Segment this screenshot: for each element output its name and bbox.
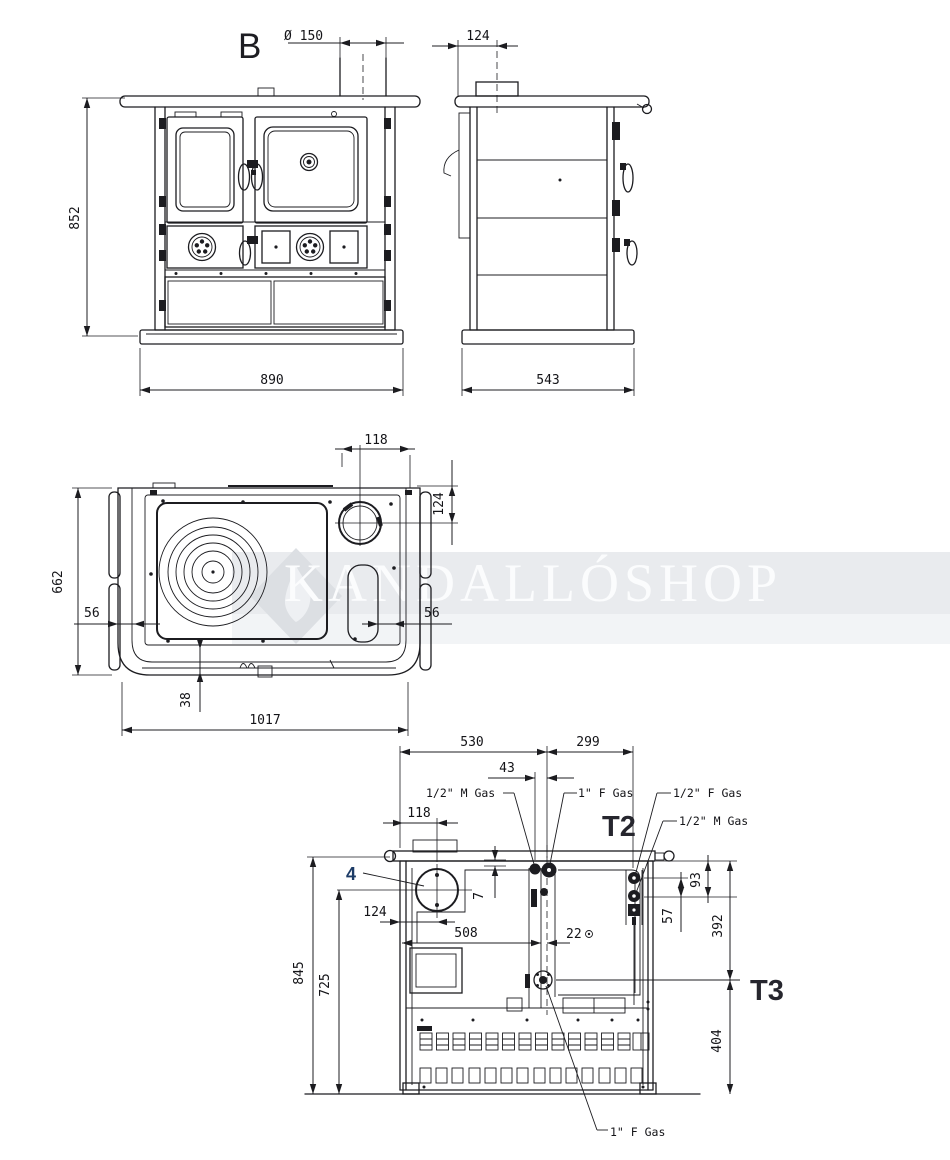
gas-m-right-label: 1/2" M Gas <box>679 814 748 828</box>
svg-text:845: 845 <box>292 961 307 984</box>
gas-m-top-label: 1/2" M Gas <box>426 786 495 800</box>
wood-drawer <box>165 277 385 327</box>
svg-text:392: 392 <box>711 914 726 937</box>
svg-text:725: 725 <box>318 973 333 996</box>
svg-text:56: 56 <box>84 606 100 621</box>
watermark: KANDALLÓSHOP <box>232 548 950 644</box>
dim-flue-diameter: Ø 150 <box>284 29 323 44</box>
flue-callout-4: 4 <box>346 864 356 884</box>
dim-height-852: 852 <box>68 98 138 336</box>
dim-725: 725 <box>318 890 342 1094</box>
air-rosette-left <box>189 234 216 261</box>
svg-text:543: 543 <box>536 373 559 388</box>
svg-text:852: 852 <box>68 206 83 229</box>
rear-view: 530 299 43 1/2" M Gas 1" F Gas T2 1/2" F… <box>292 735 784 1139</box>
dim-width-1017: 1017 <box>122 682 408 736</box>
svg-text:56: 56 <box>424 606 440 621</box>
drawing-page: KANDALLÓSHOP B Ø 150 <box>0 0 950 1160</box>
svg-text:124: 124 <box>363 905 387 920</box>
dim-left-56: 56 <box>74 606 160 627</box>
technical-drawing: KANDALLÓSHOP B Ø 150 <box>0 0 950 1160</box>
dim-57: 57 <box>644 872 688 932</box>
lower-panels <box>165 222 385 277</box>
fitting-bolt <box>540 888 548 896</box>
dim-depth-662: 662 <box>51 488 112 675</box>
svg-text:93: 93 <box>689 872 704 888</box>
side-view: 124 <box>432 29 652 396</box>
dim-top-124: 124 <box>417 460 458 545</box>
dim-404: 404 <box>710 980 733 1094</box>
air-rosette-right <box>297 234 324 261</box>
side-top-plate <box>455 96 652 114</box>
side-body <box>444 107 637 330</box>
svg-text:57: 57 <box>661 908 676 924</box>
svg-text:124: 124 <box>432 492 447 516</box>
dim-392: 392 <box>711 861 733 980</box>
svg-text:299: 299 <box>576 735 599 750</box>
svg-text:890: 890 <box>260 373 283 388</box>
gas-f-top-label: 1" F Gas <box>578 786 633 800</box>
thermometer <box>301 154 318 171</box>
svg-text:530: 530 <box>460 735 483 750</box>
base-plinth <box>140 330 403 344</box>
flue-callout-leader <box>363 873 424 886</box>
firebox-door <box>167 117 243 223</box>
dim-845: 845 <box>292 857 390 1094</box>
door-handles <box>239 160 263 265</box>
svg-text:662: 662 <box>51 570 66 593</box>
t2-label: T2 <box>602 811 636 843</box>
side-base <box>462 330 634 344</box>
dim-width-890: 890 <box>140 348 403 396</box>
front-view: B Ø 150 <box>68 27 420 396</box>
svg-text:22: 22 <box>566 927 582 942</box>
svg-text:118: 118 <box>364 433 387 448</box>
watermark-text: KANDALLÓSHOP <box>284 553 782 613</box>
svg-text:118: 118 <box>407 806 430 821</box>
dim-rear-124: 124 <box>363 905 455 925</box>
dim-508-22: 508 22 <box>402 926 593 946</box>
stove-body <box>155 107 395 330</box>
gas-fitting-f-top <box>542 863 557 878</box>
gas-fitting-m-top <box>530 864 541 875</box>
back-rail <box>153 483 333 488</box>
dim-flue-offset-124: 124 <box>432 29 518 113</box>
dim-depth-543: 543 <box>462 348 634 396</box>
flue-pipe <box>340 54 386 100</box>
t3-label: T3 <box>750 975 784 1007</box>
vent-grille-row2 <box>420 1068 645 1089</box>
dim-93: 93 <box>644 855 737 903</box>
vent-grille-row1 <box>420 1033 649 1050</box>
top-plate <box>120 88 420 107</box>
svg-text:7: 7 <box>472 892 487 900</box>
dim-43: 43 <box>488 761 574 860</box>
gas-f-right-label: 1/2" F Gas <box>673 786 742 800</box>
svg-text:43: 43 <box>499 761 515 776</box>
rear-inner-panels <box>406 845 650 1031</box>
dim-top-118: 118 <box>335 433 415 502</box>
gas-f-bottom-label: 1" F Gas <box>610 1125 665 1139</box>
svg-text:38: 38 <box>179 692 194 708</box>
oven-door <box>255 117 367 223</box>
svg-text:404: 404 <box>710 1029 725 1053</box>
svg-text:124: 124 <box>466 29 490 44</box>
rear-top-plate <box>385 840 675 862</box>
dim-gap-7: 7 <box>472 846 506 900</box>
svg-text:1017: 1017 <box>249 713 280 728</box>
rear-flue-outlet <box>337 864 472 918</box>
svg-text:508: 508 <box>454 926 477 941</box>
section-label-b: B <box>238 27 261 66</box>
fitting-bracket <box>531 889 537 907</box>
